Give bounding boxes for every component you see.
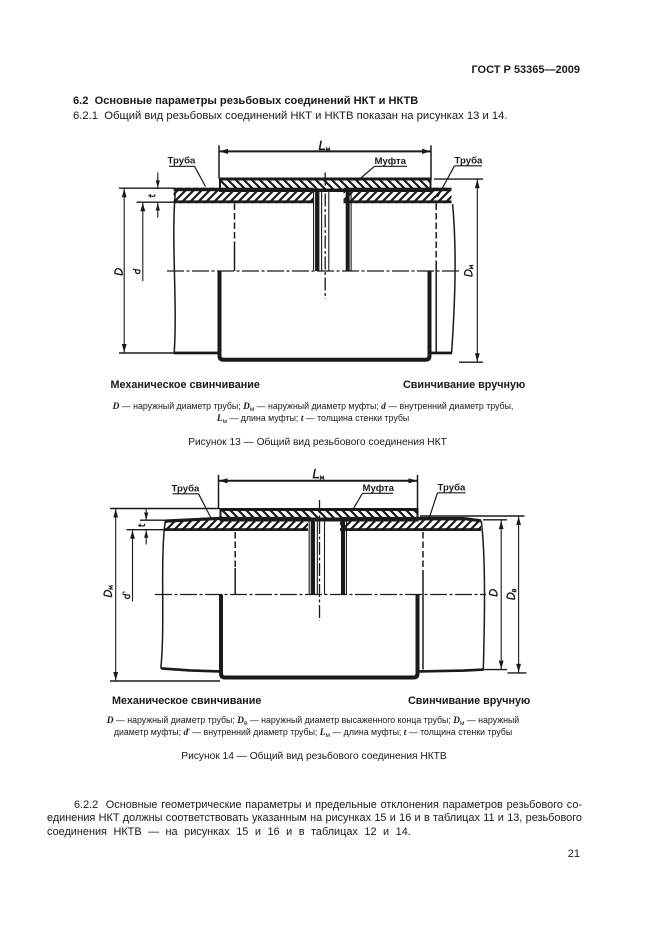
svg-text:Труба: Труба [455,155,483,166]
svg-text:Муфта: Муфта [363,483,395,494]
svg-text:Труба: Труба [168,156,196,167]
svg-text:Муфта: Муфта [375,156,407,167]
svg-text:Труба: Труба [172,483,200,494]
svg-text:Труба: Труба [438,482,466,493]
